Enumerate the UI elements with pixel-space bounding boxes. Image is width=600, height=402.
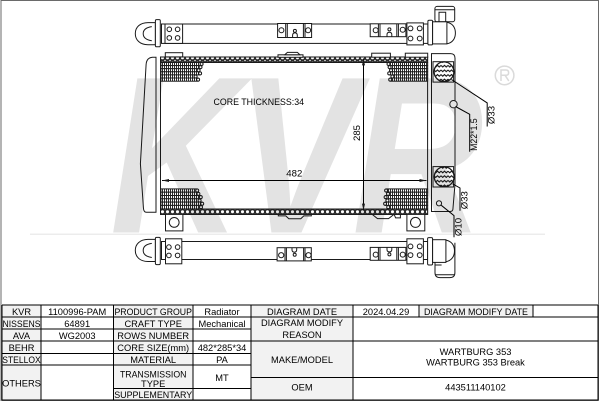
svg-text:482: 482 — [286, 168, 302, 179]
svg-text:OTHERS: OTHERS — [2, 379, 41, 389]
svg-text:REASON: REASON — [282, 330, 321, 340]
svg-text:PA: PA — [216, 355, 229, 365]
svg-text:WG2003: WG2003 — [59, 331, 96, 341]
svg-text:WARTBURG 353 Break: WARTBURG 353 Break — [426, 358, 525, 368]
svg-text:DIAGRAM MODIFY DATE: DIAGRAM MODIFY DATE — [424, 307, 528, 317]
svg-text:OEM: OEM — [291, 382, 312, 392]
svg-text:ROWS NUMBER: ROWS NUMBER — [117, 331, 189, 341]
svg-text:MAKE/MODEL: MAKE/MODEL — [271, 355, 333, 365]
svg-text:NISSENS: NISSENS — [3, 319, 41, 329]
svg-text:64891: 64891 — [64, 319, 90, 329]
svg-text:DIAGRAM MODIFY: DIAGRAM MODIFY — [261, 318, 343, 328]
svg-text:CRAFT TYPE: CRAFT TYPE — [124, 319, 182, 329]
svg-text:MATERIAL: MATERIAL — [130, 355, 176, 365]
svg-text:DIAGRAM DATE: DIAGRAM DATE — [267, 307, 337, 317]
svg-text:TYPE: TYPE — [141, 379, 165, 389]
svg-text:Ø10: Ø10 — [454, 218, 465, 236]
svg-text:Mechanical: Mechanical — [198, 319, 245, 329]
svg-text:285: 285 — [352, 125, 363, 141]
svg-text:WARTBURG 353: WARTBURG 353 — [440, 347, 512, 357]
svg-text:Ø33: Ø33 — [486, 106, 497, 124]
svg-text:482*285*34: 482*285*34 — [198, 343, 247, 353]
svg-text:PRODUCT GROUP: PRODUCT GROUP — [114, 307, 192, 317]
svg-text:KVR: KVR — [12, 307, 31, 317]
svg-text:Radiator: Radiator — [204, 307, 239, 317]
svg-text:443511140102: 443511140102 — [445, 382, 506, 392]
svg-text:BEHR: BEHR — [9, 343, 35, 353]
svg-text:CORE THICKNESS:34: CORE THICKNESS:34 — [214, 97, 305, 108]
svg-text:Ø33: Ø33 — [460, 191, 471, 209]
svg-text:AVA: AVA — [13, 331, 31, 341]
svg-text:M22*1.5: M22*1.5 — [469, 118, 479, 151]
svg-text:1100996-PAM: 1100996-PAM — [48, 307, 106, 317]
svg-text:MT: MT — [215, 373, 229, 383]
svg-text:STELLOX: STELLOX — [2, 355, 41, 365]
svg-text:2024.04.29: 2024.04.29 — [363, 307, 410, 317]
svg-text:CORE SIZE(mm): CORE SIZE(mm) — [117, 343, 189, 353]
svg-text:SUPPLEMENTARY: SUPPLEMENTARY — [114, 390, 192, 400]
